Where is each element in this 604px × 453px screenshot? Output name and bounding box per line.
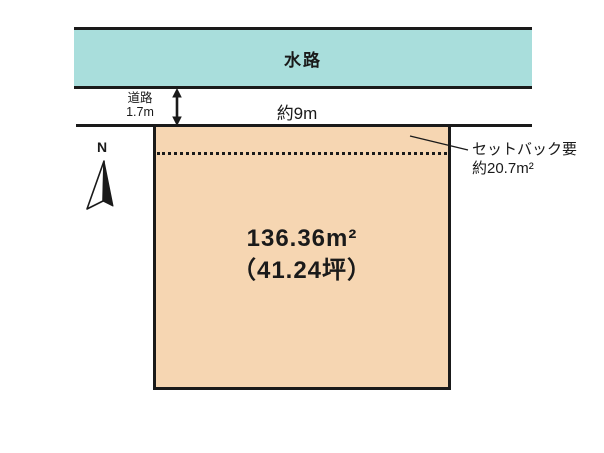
setback-annotation: セットバック要 約20.7m² — [472, 140, 602, 178]
north-arrow-icon — [82, 157, 118, 215]
road-label-width: 1.7m — [112, 106, 168, 120]
parcel-area-tsubo: （41.24坪） — [156, 255, 448, 287]
parcel-area-m2: 136.36m² — [156, 223, 448, 255]
road-label-name: 道路 — [112, 92, 168, 106]
road-label: 道路 1.7m — [112, 92, 168, 119]
land-parcel: 136.36m² （41.24坪） — [153, 124, 451, 390]
road-width-dimension-arrow-icon — [169, 88, 185, 126]
setback-annotation-line1: セットバック要 — [472, 140, 602, 159]
frontage-label: 約9m — [255, 99, 339, 124]
site-plan-diagram: 水路 道路 1.7m 約9m 136.36m² （41.24坪） セットバック要… — [0, 0, 604, 453]
north-label: N — [88, 139, 116, 155]
waterway-band: 水路 — [74, 27, 532, 89]
waterway-label: 水路 — [284, 46, 322, 71]
setback-leader-line — [405, 132, 475, 156]
parcel-area-label: 136.36m² （41.24坪） — [156, 223, 448, 287]
setback-annotation-line2: 約20.7m² — [472, 159, 602, 178]
setback-dotted-line — [157, 152, 447, 155]
